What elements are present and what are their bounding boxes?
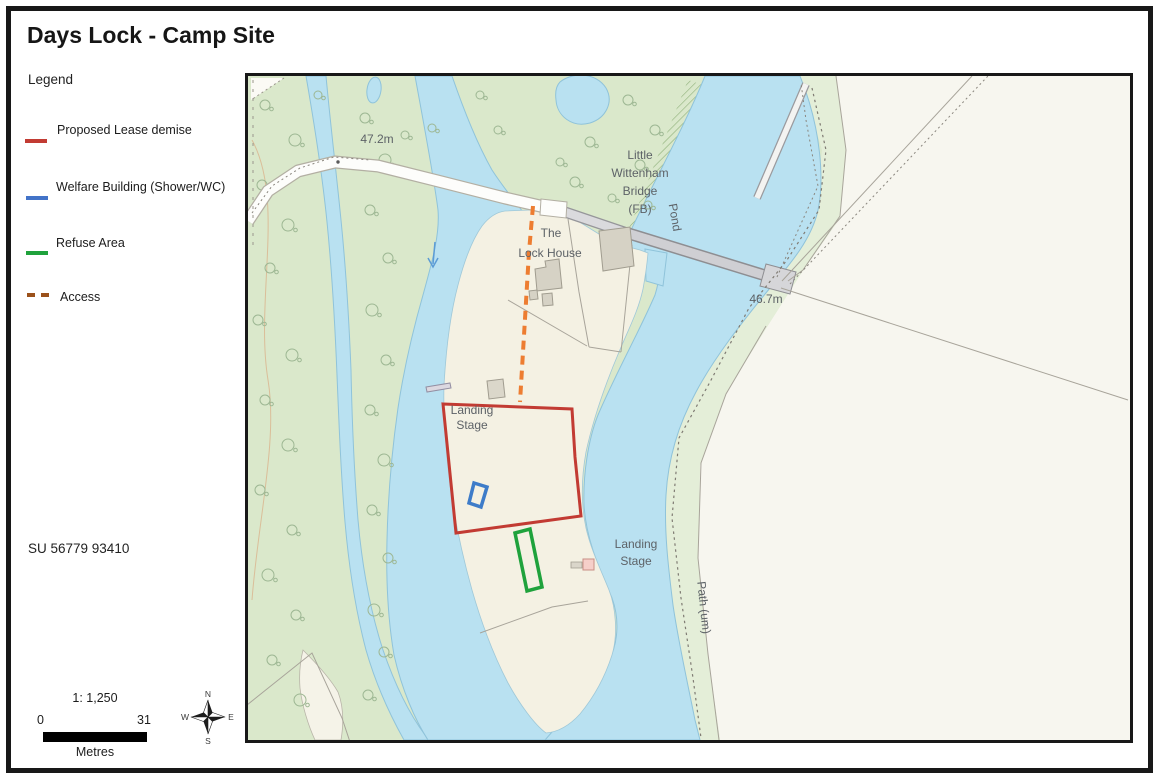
lock-house-label-line2: Lock House (518, 246, 582, 260)
page-title: Days Lock - Camp Site (27, 22, 275, 49)
scale-units: Metres (58, 745, 132, 759)
landing-stage-structure (583, 559, 594, 570)
bridge-name-line1: Little (627, 148, 653, 162)
welfare-line-swatch (26, 196, 48, 200)
bridge-name-line2: Wittenham (611, 166, 668, 180)
refuse-line-swatch (26, 251, 48, 255)
compass-north-label: N (205, 689, 211, 699)
legend-item-lease-label: Proposed Lease demise (57, 123, 192, 137)
road-junction-block (540, 199, 567, 218)
scale-ratio: 1: 1,250 (58, 691, 132, 705)
river-inlet (645, 249, 667, 286)
bridge-name-line3: Bridge (623, 184, 658, 198)
camp-site-building (487, 379, 505, 399)
access-line-swatch (27, 293, 49, 297)
legend-item-refuse-label: Refuse Area (56, 236, 125, 250)
legend-item-welfare-label: Welfare Building (Shower/WC) (56, 180, 225, 194)
compass-west-label: W (181, 712, 189, 722)
map-svg: 47.2m Little Wittenham Bridge (FB) Pond … (248, 76, 1130, 740)
scale-bar (43, 732, 147, 742)
pond-shape (556, 76, 609, 124)
grid-reference: SU 56779 93410 (28, 541, 129, 556)
landing-stage-1-line2: Stage (456, 418, 488, 432)
spot-height-46-label: 46.7m (749, 292, 782, 306)
compass-east-label: E (228, 712, 234, 722)
spot-height-47-label: 47.2m (360, 132, 393, 146)
compass-south-label: S (205, 736, 211, 746)
legend-item-access-label: Access (60, 290, 100, 304)
landing-stage-1-line1: Landing (451, 403, 494, 417)
lease-line-swatch (25, 139, 47, 143)
landing-stage-2-line2: Stage (620, 554, 652, 568)
lock-house-outbuilding (599, 227, 634, 271)
scale-end-label: 31 (137, 713, 151, 727)
road-spot-marker (336, 160, 339, 163)
compass-rose-icon: N E S W (178, 686, 238, 750)
map-canvas: 47.2m Little Wittenham Bridge (FB) Pond … (245, 73, 1133, 743)
lock-house-label-line1: The (541, 226, 562, 240)
scale-start-label: 0 (37, 713, 44, 727)
bridge-name-line4: (FB) (628, 202, 651, 216)
landing-stage-2-line1: Landing (615, 537, 658, 551)
legend-heading: Legend (28, 72, 73, 87)
